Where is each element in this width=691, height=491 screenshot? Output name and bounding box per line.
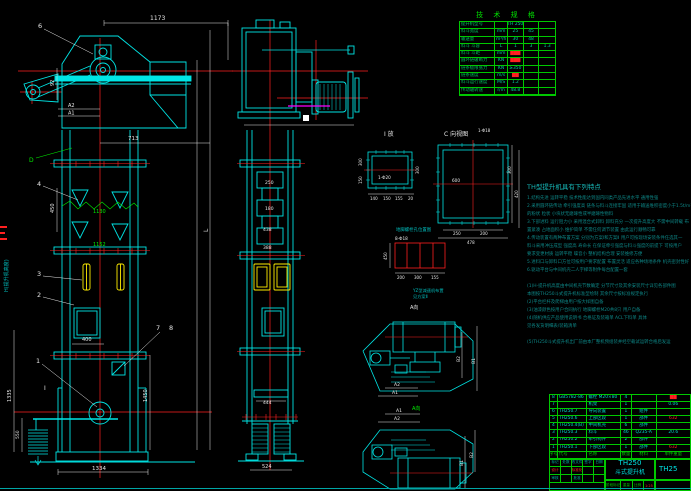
edge-red-tick [0,232,5,234]
dim-1130: 1130 [93,209,106,215]
bom-material [632,402,657,409]
tech-table-row: 链条速度 m/s ██ [460,73,555,80]
feature-notes-body: 1.结构先进 运转平稳 技术性能达到国内同类产品先进水平 通用性强2.采用圆环链… [527,195,691,347]
bom-seq: 8 [550,395,558,402]
bom-code: TH250.3 [558,430,588,437]
drawing-frame-bottom [0,488,691,489]
bom-weight [657,438,691,445]
bom-name: 上部区段 [587,416,621,423]
elevator-front-view: 6 1173 A2 A1 92 713 4 450 3 2 400 7 8 1 … [0,0,235,491]
tech-table-row: 链条极限张力 KN ≥350 [460,66,555,73]
spec-label: 料斗 斗距 [460,51,495,58]
feature-line: 6.驱动平台与中间机壳二人字梯等附件每台配置一套 [527,267,691,275]
spec-value: 1.2 [508,80,524,87]
dim: 200 [397,275,405,280]
feature-line: (4)随机供应产品使用说明书 合格证及装箱单 ACL下料单 具体 [527,315,691,323]
rev-label: 更改文件号 [572,459,583,467]
dim: 150 [358,176,363,184]
spec-unit: mm [495,29,508,36]
note: 见方案Ⅱ [413,293,428,300]
dim-524: 524 [262,464,272,470]
feature-line: 4.传动装置有两种布置方案 分别为方案Ⅰ和方案Ⅱ 用户可按现场安装条件任选其一 [527,235,691,243]
rev-label [561,467,572,475]
detail-i: I 放 1-Φ20 140 150 155 20 300 150 300 [358,130,420,201]
dim: 420 [514,190,519,198]
takeup-screw-hatch [252,428,290,452]
feature-line [527,275,691,283]
hole-callout: 8-Φ18 [395,236,408,241]
dim-a1: A1 [68,111,75,117]
hole-callout: 1-Φ20 [378,175,391,180]
rev-label [583,467,594,475]
dim-L: L [203,228,210,232]
rev-label: 批准 [572,475,583,483]
doc-number-cell: TH25 [655,458,691,480]
bom-row: 4 TH250.4(B) 中间机壳 6 部件 [550,423,690,430]
spec-value: 48.8 [508,88,524,95]
spec-label: 料斗 斗容 [460,44,495,51]
bom-weight [657,409,691,416]
dim: 300 [414,275,422,280]
balloon-7: 7 [156,324,160,332]
spec-label: 提升机型号 [460,22,495,29]
spec-value: ██ [508,73,524,80]
cad-application-canvas[interactable]: { "tech_table": { "title": "技 术 规 格", "r… [0,0,691,491]
dim-1450: 1450 [143,389,149,402]
feature-line: 本图按TH250斗式提升机标准型绘制 其余尺寸按标准规定执行 [527,291,691,299]
feature-notes-title: TH型提升机具有下列特点 [527,181,691,191]
view-marker: A向 [412,405,420,412]
bom-material: 部件 [632,445,657,452]
spec-unit: mm [495,51,508,58]
bom-name: 机架 [587,402,621,409]
spec-value [524,58,540,65]
bom-weight: 20.6 [657,430,691,437]
spec-unit: L [495,44,508,51]
dim: B1 [471,358,477,364]
bom-qty: 1 [621,416,632,423]
arrangement-top: B2 B1 A2 A1 A向 [363,322,477,412]
bom-weight: 0.06 [657,402,691,409]
revision-row-marks: 标记 处数 更改文件号 签字 日期 [550,459,604,467]
break-lines [36,148,138,209]
spec-label: 圆环链破断力 [460,58,495,65]
bom-material: Q235-A [632,430,657,437]
feature-line: 2.采用圆环链传动 牵引强度高 链条与料斗连接牢固 适用于输送堆积密度小于1.5… [527,203,691,211]
dim: 300 [415,166,420,174]
feature-notes: TH型提升机具有下列特点 1.结构先进 运转平稳 技术性能达到国内同类产品先进水… [527,181,691,347]
rev-label [594,475,604,483]
dim: B2 [469,452,475,458]
height-note: H(提升机高度) [3,259,10,292]
revision-grid: 标记 处数 更改文件号 签字 日期 设计 标准化 审核 批准 [549,458,605,491]
dim: 478 [467,240,475,245]
white-marker [303,115,309,121]
view-marker: A向 [410,304,418,311]
bom-qty: 1 [621,402,632,409]
bom-code: TH250.4(B) [558,423,588,430]
dim: A2 [394,382,400,388]
detail-marker-d: D [29,157,34,164]
bom-seq: 7 [550,402,558,409]
spec-value: ███ [508,51,524,58]
tech-table-row: 料斗宽度 mm 25 45 [460,29,555,36]
balloon-6: 6 [38,22,42,30]
rev-label: 日期 [594,459,604,467]
bom-row: 1 TH250.1 下部区段 1 部件 632 [550,445,690,452]
spec-value [539,58,555,65]
tech-table-row: 料斗运行速度 M/S 1.2 [460,80,555,87]
spec-value: 1 [508,44,524,51]
counterweight [28,430,48,465]
feature-line: 见各发货明细表/装箱清单 [527,323,691,331]
bom-qty: 6 [621,423,632,430]
bom-name: 螺栓 M20×80 [587,395,621,402]
bom-seq: 2 [550,438,558,445]
rev-label: 处数 [561,459,572,467]
dim: B1 [459,460,465,466]
dim-180: 180 [265,206,274,212]
rev-label [561,475,572,483]
spec-label: 料斗宽度 [460,29,495,36]
bom-code: GB5782-86 [558,395,588,402]
dim: 150 [383,196,391,201]
spec-value [539,80,555,87]
tech-table-row: 传动轴转速 r/m 48.8 [460,88,555,95]
bom-row: 2 TH250.2 牵引构件 2 部件 [550,438,690,445]
bom-name: 牵引构件 [587,438,621,445]
bom-row: 5 TH250.6 上部区段 1 部件 632 [550,416,690,423]
feature-line: 要求变更材质 运转平稳 噪音小 整机结构合理 安装维修方便 [527,251,691,259]
bom-row: 3 TH250.3 料斗 46 Q235-A 20.6 [550,430,690,437]
dim: 600 [452,178,460,183]
rev-label: 标记 [550,459,561,467]
view-c: C 向视图 1-Φ18 600 250 200 478 300 420 [433,128,519,245]
spec-label: 链条极限张力 [460,66,495,73]
dim: 450 [383,252,388,260]
dim: B2 [456,356,462,362]
detail-views: I 放 1-Φ20 140 150 155 20 300 150 300 C 向… [340,100,525,491]
doc-extra-cell [655,480,691,491]
tech-table-row: 提升机型号 TH 250 [460,22,555,29]
spec-value [524,66,540,73]
detail-i-label: I 放 [384,130,394,138]
spec-value [524,73,540,80]
feature-line: (5)TH250斗式提升机出厂前由本厂整机预组装并经空载试运转合格后发运 [527,339,691,347]
spec-value: TH 250 [508,22,524,29]
bom-seq: 6 [550,409,558,416]
feature-line: 1.结构先进 运转平稳 技术性能达到国内同类产品先进水平 通用性强 [527,195,691,203]
rev-label: 签字 [583,459,594,467]
spec-value [539,22,555,29]
dim: 300 [507,166,512,174]
bom-qty: 1 [621,409,632,416]
bom-code: TH250.1 [558,445,588,452]
spec-value: ≥350 [508,66,524,73]
balloon-3: 3 [37,270,41,278]
balloon-1: 1 [36,357,40,365]
spec-label: 链条速度 [460,73,495,80]
anchor-bolt-plan: 地脚螺栓孔位置图 8-Φ18 450 200 300 155 YZ型减速机布置 … [383,226,445,311]
spec-label: 输送量 [460,37,495,44]
spec-value: 1.3 [539,44,555,51]
model-number: TH250 [606,459,654,467]
spec-value [524,80,540,87]
spec-unit: r/m [495,88,508,95]
bom-qty: 1 [621,445,632,452]
tech-table-title: 技 术 规 格 [459,10,556,20]
rev-label [594,467,604,475]
bom-material: 部件 [632,438,657,445]
balloon-2: 2 [37,291,41,299]
note: YZ型减速机布置 [412,287,444,294]
spec-value [524,51,540,58]
spec-value: 45 [524,29,540,36]
spec-value [539,29,555,36]
bom-name: 中间机壳 [587,423,621,430]
spec-unit: KN [495,66,508,73]
bom-code: TH250.7 [558,409,588,416]
buckets [83,264,124,290]
buckets [254,264,290,290]
bom-row: 8 GB5782-86 螺栓 M20×80 4 ██ [550,395,690,402]
spec-label: 传动轴转速 [460,88,495,95]
dim-550: 550 [15,430,21,439]
feature-line: 的粉状 粒状 小块状无磨琢性或半磨琢性物料 [527,211,691,219]
tech-table-row: 输送量 m³/h 30 48 [460,37,555,44]
balloon-8: 8 [169,324,173,332]
centerlines [14,38,233,478]
spec-value [539,73,555,80]
column [238,130,304,461]
bom-material [632,395,657,402]
feature-line: 3.下部进料 运行阻力小 采用混合式卸料 卸料充分 一次提升高度大 不需中间转载… [527,219,691,227]
bom-table: 8 GB5782-86 螺栓 M20×80 4 ██ 7 机架 1 0.06 6… [549,394,691,460]
dim: 300 [358,158,363,166]
dim-a2: A2 [68,103,75,109]
scale-strip: 阶段标记 重量 比例 1:25 [605,480,655,491]
dim: A1 [392,390,398,396]
feature-line: (2)平台栏杆及爬梯由用户按大样图自备 [527,299,691,307]
spec-value [539,88,555,95]
spec-unit: KN [495,58,508,65]
view-c-label: C 向视图 [444,130,468,138]
bom-weight: ██ [657,395,691,402]
dim-1334: 1334 [92,466,106,472]
arrangement-bottom: A1 A2 B1 B2 [363,408,475,489]
spec-value [539,51,555,58]
feature-line: (1)H-提升机高度由中间机壳节数确定 分节尺寸及其余安装尺寸详见各部件图 [527,283,691,291]
dim: 155 [431,275,439,280]
bom-seq: 5 [550,416,558,423]
bom-qty: 4 [621,395,632,402]
hole-callout: 1-Φ18 [478,128,491,133]
bom-name: 料斗 [587,430,621,437]
bom-rows: 8 GB5782-86 螺栓 M20×80 4 ██ 7 机架 1 0.06 6… [550,395,690,452]
dim-1335: 1335 [7,389,13,402]
dim-388: 388 [263,245,272,251]
spec-value [539,37,555,44]
bom-code [558,402,588,409]
dim-250: 250 [265,180,274,186]
spec-value [539,66,555,73]
dim-713: 713 [128,136,139,142]
bom-seq: 3 [550,430,558,437]
bom-code: TH250.6 [558,416,588,423]
balloon-4: 4 [37,180,41,188]
dim: 20 [408,196,414,201]
bom-qty: 2 [621,438,632,445]
feature-line: 5.进料口与卸料口方位可按用户要求配置 布置灵活 适应各种场地条件 机壳密封性好 [527,259,691,267]
dim: 140 [370,196,378,201]
spec-value [524,22,540,29]
dim-92: 92 [50,80,56,86]
spec-value: 30 [508,37,524,44]
feature-line: 置紧凑 占地面积小 维护简单 不需任何调节装置 由此运行顺畅可靠 [527,227,691,235]
dim-450: 450 [50,203,56,213]
dim: A1 [396,408,402,414]
spec-unit: m/s [495,73,508,80]
bom-weight: 632 [657,445,691,452]
bom-name: 下部区段 [587,445,621,452]
tech-table-row: 料斗 斗距 mm ███ [460,51,555,58]
bom-material: 部件 [632,416,657,423]
dim: A2 [394,416,400,422]
rev-label: 设计 [550,467,561,475]
spec-value: 3 [524,44,540,51]
bom-qty: 46 [621,430,632,437]
bolt-plan-title: 地脚螺栓孔位置图 [396,226,432,233]
drawing-name: 斗式提升机 [606,467,654,476]
bom-material: 部件 [632,423,657,430]
bom-seq: 1 [550,445,558,452]
rev-label: 审核 [550,475,561,483]
spec-value [524,88,540,95]
dim-438: 438 [263,227,272,233]
dim: 155 [395,196,403,201]
bom-weight [657,423,691,430]
tech-table-row: 圆环链破断力 KN ███ [460,58,555,65]
rev-label [583,475,594,483]
bom-seq: 4 [550,423,558,430]
dim-1173: 1173 [150,15,165,22]
dim-1152: 1152 [93,242,106,248]
dimension-lines [14,20,228,475]
bom-code: TH250.2 [558,438,588,445]
rev-label: 标准化 [572,467,583,475]
feature-line: (3)油漆颜色按用户合同执行 地脚螺栓M20共8只 用户自备 [527,307,691,315]
bom-row: 7 机架 1 0.06 [550,402,690,409]
spec-value: 48 [524,37,540,44]
spec-value: 25 [508,29,524,36]
spec-unit: M/S [495,80,508,87]
edge-red-tick [0,238,7,240]
edge-red-tick [0,226,7,228]
dim: 200 [480,231,488,236]
bom-name: 导向装置 [587,409,621,416]
bom-material: 组件 [632,409,657,416]
spec-unit [495,22,508,29]
feature-line: 料斗采用冲压成型 强度高 寿命长 在保证牵引强度与料斗强度的前提下 可按用户 [527,243,691,251]
spec-label: 料斗运行速度 [460,80,495,87]
bom-weight: 632 [657,416,691,423]
detail-marker-i: I [44,385,46,392]
dim-400: 400 [82,337,92,343]
dim: 250 [453,231,461,236]
drawing-title-cell: TH250 斗式提升机 [605,458,655,480]
title-block: 标记 处数 更改文件号 签字 日期 设计 标准化 审核 批准 TH250 斗式提… [549,458,691,491]
revision-row-check: 审核 批准 [550,475,604,483]
bom-row: 6 TH250.7 导向装置 1 组件 [550,409,690,416]
tech-table-row: 料斗 斗容 L 1 3 1.3 [460,44,555,51]
spec-unit: m³/h [495,37,508,44]
spec-value: ███ [508,58,524,65]
tech-spec-table: 提升机型号 TH 250 料斗宽度 mm 25 45 输送量 m³/h 30 4… [459,21,556,96]
revision-row-design: 设计 标准化 [550,467,604,475]
feature-line [527,331,691,339]
